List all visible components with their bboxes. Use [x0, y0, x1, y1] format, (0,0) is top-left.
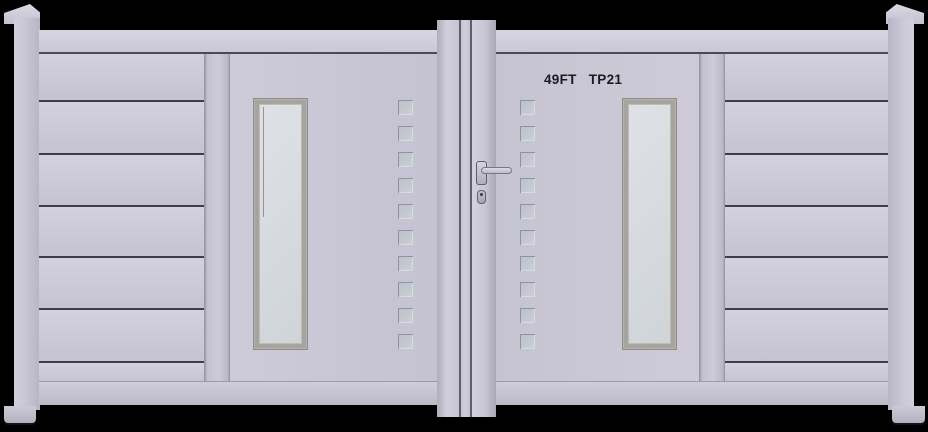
right-window-glass	[628, 104, 671, 344]
horizontal-slat	[725, 205, 888, 258]
astragal-cover-strip	[461, 20, 470, 417]
right-slat-section	[725, 52, 888, 382]
right-leaf-lock-stile	[472, 20, 496, 417]
glass-reflection	[263, 107, 264, 217]
model-label-size: 49FT	[544, 72, 577, 87]
left-post-foot	[4, 406, 36, 423]
horizontal-slat	[725, 153, 888, 207]
right-frosted-window	[622, 98, 677, 350]
model-label-code: TP21	[589, 72, 622, 87]
horizontal-slat	[725, 100, 888, 155]
left-slat-section	[39, 52, 204, 382]
right-leaf-top-rail	[466, 30, 888, 54]
gate-leaf-left	[39, 30, 462, 405]
horizontal-slat	[39, 308, 204, 363]
left-leaf-top-rail	[39, 30, 462, 54]
right-post-foot	[892, 406, 925, 423]
left-window-glass	[259, 104, 302, 344]
handle-lever	[481, 167, 512, 174]
right-post	[888, 18, 914, 410]
horizontal-slat	[39, 100, 204, 155]
model-label: 49FTTP21	[544, 72, 622, 87]
horizontal-slat	[725, 52, 888, 100]
horizontal-slat	[39, 205, 204, 258]
horizontal-slat	[39, 52, 204, 100]
gate-product-render: 49FTTP21	[0, 0, 928, 432]
gate-leaf-right	[466, 30, 888, 405]
horizontal-slat	[725, 256, 888, 310]
left-mid-stile	[204, 52, 230, 382]
left-post	[14, 18, 40, 410]
left-frosted-window	[253, 98, 308, 350]
left-leaf-bottom-rail	[39, 381, 462, 405]
horizontal-slat	[39, 153, 204, 207]
right-leaf-bottom-rail	[466, 381, 888, 405]
horizontal-slat	[725, 308, 888, 363]
center-meeting-stiles	[437, 20, 496, 417]
horizontal-slat	[39, 256, 204, 310]
left-leaf-lock-stile	[437, 20, 459, 417]
lock-cylinder	[477, 190, 486, 204]
right-mid-stile	[699, 52, 725, 382]
